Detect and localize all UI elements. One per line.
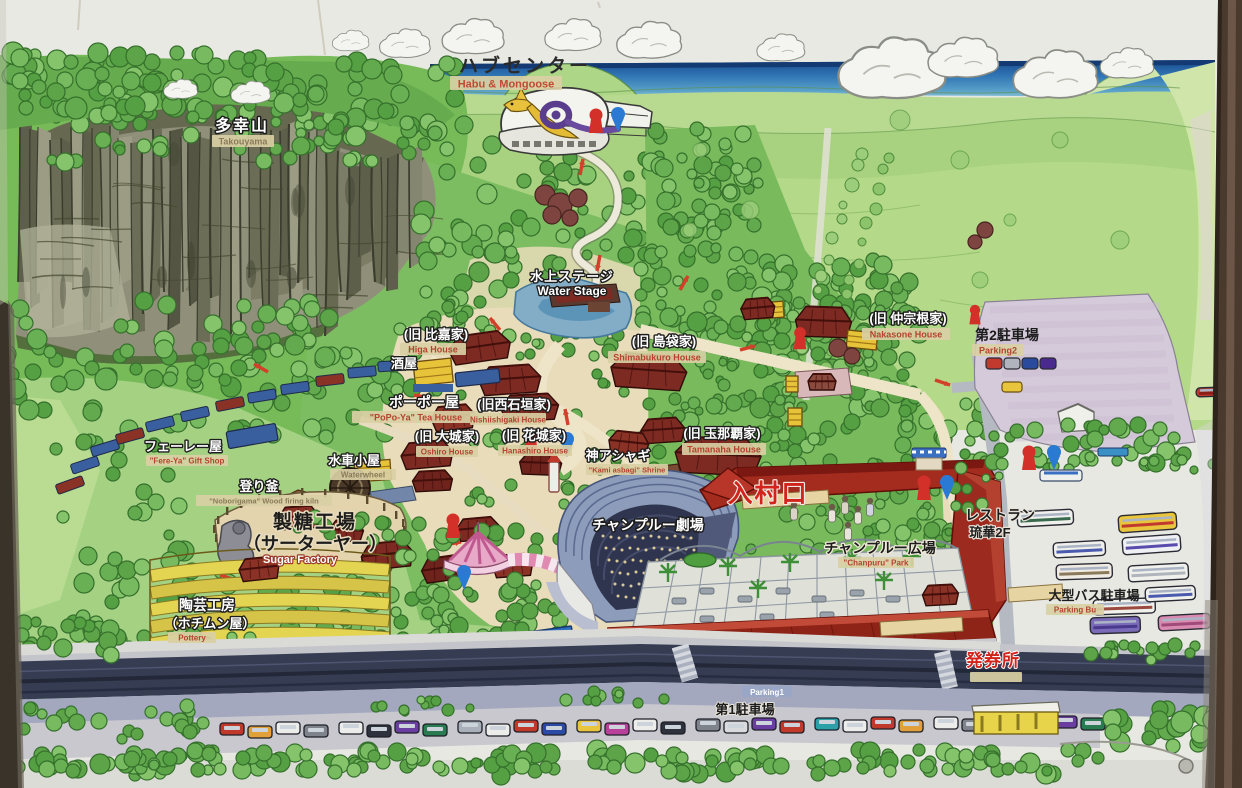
svg-text:"Kami asbagi" Shrine: "Kami asbagi" Shrine	[589, 466, 666, 475]
svg-text:Parking2: Parking2	[979, 346, 1017, 356]
svg-text:水上ステージ: 水上ステージ	[530, 269, 614, 284]
svg-text:Nakasone House: Nakasone House	[870, 330, 943, 340]
svg-text:Parking1: Parking1	[750, 688, 784, 697]
svg-text:Sugar Factory: Sugar Factory	[263, 554, 338, 566]
svg-text:製糖工場: 製糖工場	[272, 510, 357, 533]
svg-text:第2駐車場: 第2駐車場	[975, 327, 1039, 343]
svg-text:Oshiro House: Oshiro House	[421, 448, 474, 457]
svg-text:(旧 仲宗根家): (旧 仲宗根家)	[869, 311, 946, 326]
svg-text:琉華2F: 琉華2F	[969, 525, 1010, 540]
svg-text:ハブセンター: ハブセンター	[459, 54, 591, 77]
svg-text:ポーポー屋: ポーポー屋	[389, 394, 459, 410]
svg-text:(旧 比嘉家): (旧 比嘉家)	[404, 327, 468, 342]
svg-text:Higa House: Higa House	[408, 345, 458, 355]
svg-text:(旧 玉那覇家): (旧 玉那覇家)	[683, 426, 760, 441]
svg-text:"Noborigama" Wood firing kiln: "Noborigama" Wood firing kiln	[209, 497, 319, 506]
svg-text:発券所: 発券所	[965, 650, 1020, 670]
svg-text:(旧西石垣家): (旧西石垣家)	[477, 397, 551, 412]
svg-text:Parking Bu: Parking Bu	[1054, 606, 1096, 615]
svg-text:レストラン: レストラン	[965, 507, 1035, 523]
svg-text:チャンプルー広場: チャンプルー広場	[824, 540, 935, 556]
svg-text:Habu & Mongoose: Habu & Mongoose	[458, 79, 555, 91]
svg-text:登り釜: 登り釜	[238, 479, 279, 494]
svg-text:神アシャギ: 神アシャギ	[586, 448, 650, 463]
svg-text:(旧 島袋家): (旧 島袋家)	[632, 334, 696, 349]
svg-text:Waterwheel: Waterwheel	[341, 471, 385, 480]
svg-text:フェーレー屋: フェーレー屋	[144, 439, 222, 454]
svg-text:多幸山: 多幸山	[215, 116, 269, 135]
svg-text:Pottery: Pottery	[178, 634, 206, 643]
svg-text:Water Stage: Water Stage	[538, 284, 607, 298]
svg-text:第1駐車場: 第1駐車場	[715, 702, 774, 717]
svg-text:Hanashiro House: Hanashiro House	[502, 447, 568, 456]
svg-text:Tamanaha House: Tamanaha House	[687, 445, 761, 455]
svg-text:Takouyama: Takouyama	[219, 137, 269, 147]
svg-text:(旧 花城家): (旧 花城家)	[502, 428, 566, 443]
svg-text:"Chanpuru" Park: "Chanpuru" Park	[844, 559, 909, 568]
svg-text:Nishiishigaki House: Nishiishigaki House	[470, 416, 547, 425]
svg-text:大型バス駐車場: 大型バス駐車場	[1048, 588, 1139, 603]
svg-text:（サーターヤー）: （サーターヤー）	[243, 534, 387, 554]
svg-text:(旧 大城家): (旧 大城家)	[415, 429, 479, 444]
svg-text:"PoPo-Ya" Tea House: "PoPo-Ya" Tea House	[370, 413, 462, 423]
svg-text:Shimabukuro House: Shimabukuro House	[613, 353, 701, 363]
svg-text:（ホチムン屋）: （ホチムン屋）	[165, 616, 256, 631]
svg-text:酒屋: 酒屋	[391, 356, 417, 371]
svg-text:チャンプルー劇場: チャンプルー劇場	[592, 517, 703, 533]
svg-text:水車小屋: 水車小屋	[328, 453, 380, 468]
svg-text:陶芸工房: 陶芸工房	[179, 597, 235, 613]
svg-text:入村口: 入村口	[727, 480, 808, 508]
svg-text:"Fere-Ya" Gift Shop: "Fere-Ya" Gift Shop	[150, 457, 225, 466]
